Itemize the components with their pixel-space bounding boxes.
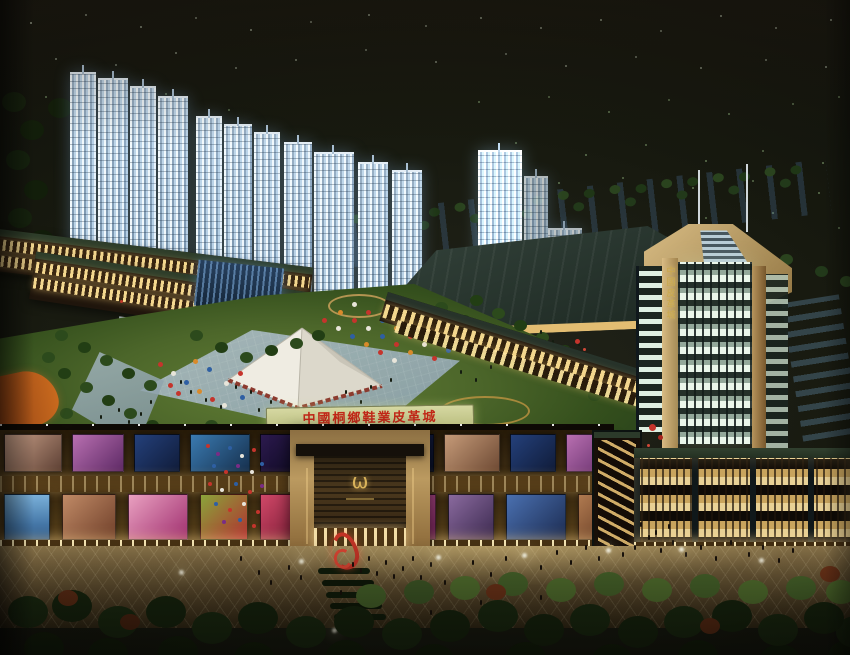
foreground-plaza <box>0 546 850 628</box>
billboard <box>200 494 248 540</box>
office-tower: 中國皮革城 <box>636 170 796 470</box>
tower-stone-column <box>752 266 766 452</box>
billboard <box>444 434 500 472</box>
balloon-swarm <box>206 444 210 448</box>
tower-antenna <box>698 170 700 232</box>
billboard <box>190 434 250 472</box>
billboard <box>4 434 62 472</box>
billboard <box>62 494 116 540</box>
mall-main-entrance: ω <box>290 430 430 552</box>
red-foliage-trees <box>0 0 20 16</box>
residential-slab-tower <box>314 152 354 304</box>
tower-banner-text: 中國皮革城 <box>664 266 677 321</box>
entrance-emblem: ω <box>290 471 430 491</box>
residential-tower <box>158 96 188 270</box>
staircase-roof <box>594 432 640 438</box>
entrance-awning <box>296 444 424 456</box>
mall-roof-lights <box>0 424 614 426</box>
residential-tower <box>98 78 128 266</box>
residential-tower <box>130 86 156 268</box>
billboard <box>4 494 50 540</box>
mall-right-lit-floors <box>634 458 850 542</box>
billboard <box>510 434 556 472</box>
billboard <box>128 494 188 540</box>
entrance-caption-line <box>346 498 374 500</box>
white-pyramid-tent <box>222 322 386 410</box>
tower-glass-facade <box>678 262 752 444</box>
mall-right-wing <box>634 448 850 552</box>
staircase-flights <box>598 440 636 552</box>
residential-tower <box>70 72 96 264</box>
billboard <box>72 434 124 472</box>
mall-right-roof <box>634 448 850 458</box>
billboard <box>448 494 494 540</box>
tower-left-wing <box>636 266 665 432</box>
night-rendering-photo: 中國桐鄉鞋業皮革城 中國皮革城 <box>0 0 850 655</box>
billboard <box>134 434 180 472</box>
tower-stone-column: 中國皮革城 <box>662 258 678 454</box>
red-balloon-clusters <box>649 424 656 431</box>
billboard <box>506 494 566 540</box>
tower-antenna <box>746 164 748 232</box>
tower-right-face <box>766 274 788 460</box>
